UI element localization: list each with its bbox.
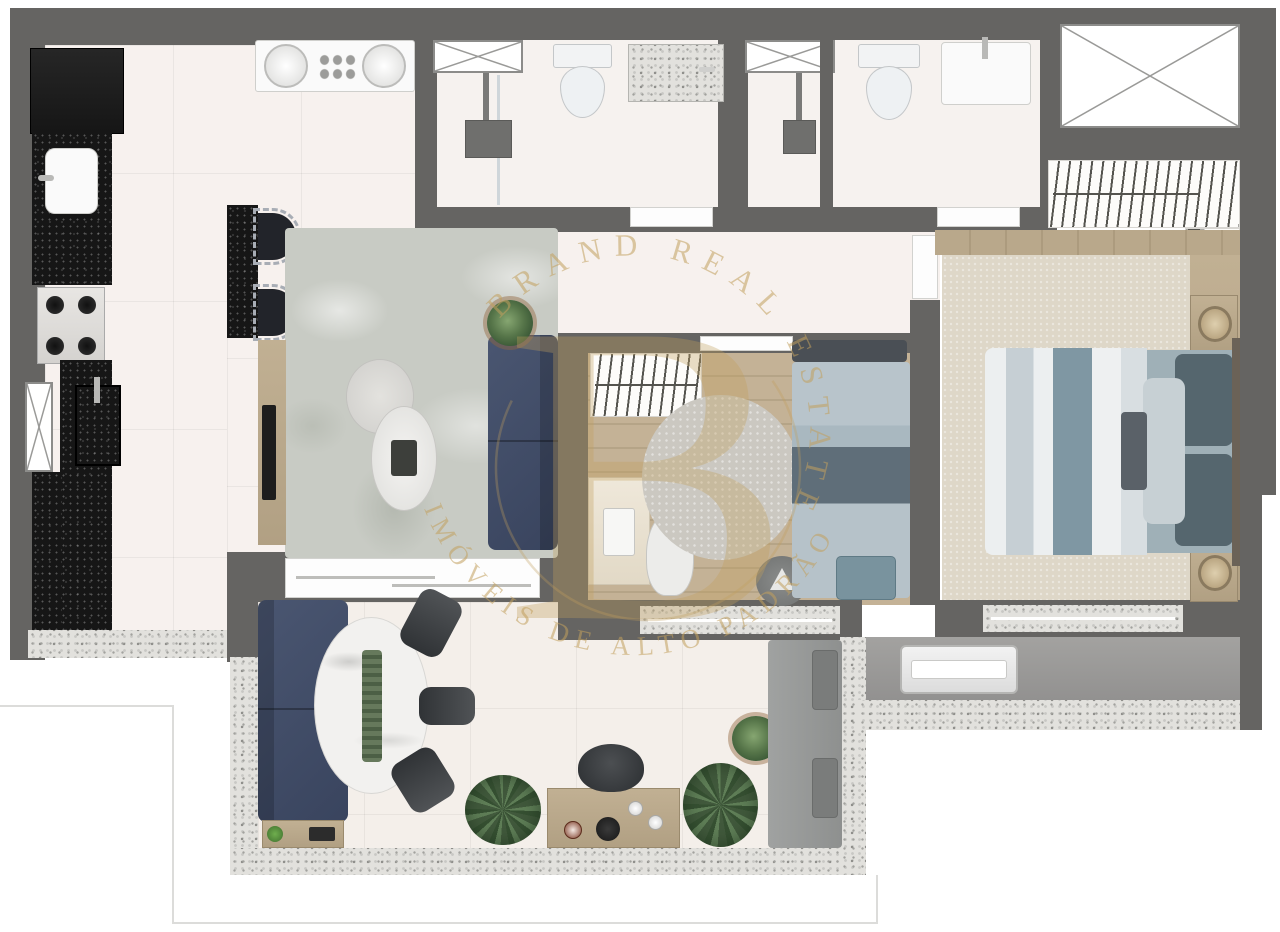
- table-runner: [362, 650, 382, 762]
- pyramid-lamp: [770, 568, 794, 590]
- coffee-cup: [628, 801, 643, 816]
- condenser-unit: [900, 645, 1018, 694]
- balcony-wall-right: [840, 637, 866, 875]
- refrigerator: [30, 48, 124, 134]
- espresso-machine: [596, 817, 620, 841]
- kitchen-counter-2b: [32, 472, 62, 630]
- throw-cushion: [1121, 412, 1147, 490]
- faucet: [94, 377, 100, 403]
- living-sliding-door: [285, 558, 540, 598]
- bedroom2-door: [700, 336, 793, 351]
- terrace-outline-v1: [172, 705, 174, 924]
- nightstand-lamp: [1198, 555, 1232, 591]
- island-counter: [227, 205, 258, 338]
- tray-book: [309, 827, 335, 841]
- corridor-wall-bottom: [858, 700, 1240, 730]
- decor-tray: [391, 440, 417, 476]
- wardrobe-rail: [595, 384, 697, 386]
- washer-drum: [264, 44, 308, 88]
- master-bed-pillow-zone: [1147, 350, 1238, 553]
- living-plant: [487, 300, 533, 346]
- cooktop-stove: [37, 287, 105, 364]
- floor-plan: B BRAND REAL ESTATE IMÓVEIS DE ALTO PADR…: [0, 0, 1280, 932]
- shower-head-2: [783, 120, 816, 154]
- bedroom2-desk: [588, 477, 650, 585]
- balcony-corner-wall: [227, 602, 258, 662]
- closet-rail: [1053, 193, 1199, 195]
- washer-dryer-pair: [255, 40, 415, 92]
- burner: [46, 337, 64, 355]
- sofa-back: [258, 600, 274, 822]
- bathroom2-divider: [820, 40, 833, 207]
- pillow-light: [1143, 378, 1185, 524]
- master-nightstand-top: [1190, 295, 1238, 353]
- balcony-wall-bottom: [230, 848, 866, 875]
- window-glass-line: [648, 619, 832, 622]
- bedroom2-foot-bench: [836, 556, 896, 600]
- kitchen-outer-wall: [28, 630, 232, 658]
- faucet: [699, 67, 715, 72]
- toilet-2-tank: [858, 44, 920, 68]
- terrace-outline-h2: [172, 922, 878, 924]
- bathroom-1-window: [433, 40, 523, 73]
- wall-right-lower: [1240, 495, 1262, 730]
- window-glass-line: [991, 617, 1175, 620]
- shower-pipe-2: [796, 73, 802, 123]
- terrace-outline-h1: [0, 705, 172, 707]
- master-closet-top: [1048, 160, 1240, 228]
- nightstand-lamp: [1198, 306, 1232, 342]
- coffee-table-large: [372, 407, 436, 510]
- kitchen-wall-window: [25, 382, 53, 472]
- shower-pipe-1: [483, 73, 489, 125]
- burner: [78, 296, 96, 314]
- balcony-wall-left: [230, 657, 258, 875]
- vanity-2: [941, 42, 1031, 105]
- master-floor-strip: [935, 230, 1240, 255]
- wall-bedroom2-master: [910, 300, 940, 605]
- bedroom2-window-band: [640, 606, 840, 634]
- dryer-drum: [362, 44, 406, 88]
- bench-cushion: [812, 758, 838, 818]
- balcony-corner-bench: [768, 640, 842, 848]
- master-headboard: [1232, 338, 1240, 566]
- desk-laptop: [603, 508, 635, 556]
- bench-cushion: [812, 650, 838, 710]
- bathroom-2-door: [937, 207, 1020, 227]
- vanity-1: [628, 44, 724, 102]
- dining-chair-2: [419, 687, 475, 725]
- master-window-band: [983, 605, 1183, 632]
- toilet-1-tank: [553, 44, 612, 68]
- balcony-sofa-tray: [262, 820, 344, 848]
- terrace-outline-v2: [876, 875, 878, 924]
- balcony-palm-2: [683, 763, 758, 847]
- bedroom2-bed-headboard: [792, 340, 907, 362]
- shaft-x-window: [1060, 24, 1240, 128]
- balcony-lounge-chair: [578, 744, 644, 792]
- laundry-sink: [75, 385, 121, 466]
- balcony-palm-1: [465, 775, 541, 845]
- faucet: [38, 175, 54, 181]
- living-sofa: [488, 335, 558, 550]
- tv: [262, 405, 276, 500]
- burner: [46, 296, 64, 314]
- control-knobs: [318, 53, 356, 81]
- burner: [78, 337, 96, 355]
- sofa-back: [540, 335, 558, 550]
- bedroom2-round-rug: [642, 395, 800, 560]
- coffee-cup: [564, 821, 582, 839]
- coffee-cup: [648, 815, 663, 830]
- balcony-sideboard: [547, 788, 680, 848]
- kitchen-sink: [45, 148, 98, 214]
- tray-plant: [267, 826, 283, 842]
- bathroom-1-door: [630, 207, 713, 227]
- shower-head-1: [465, 120, 512, 158]
- faucet: [982, 37, 988, 59]
